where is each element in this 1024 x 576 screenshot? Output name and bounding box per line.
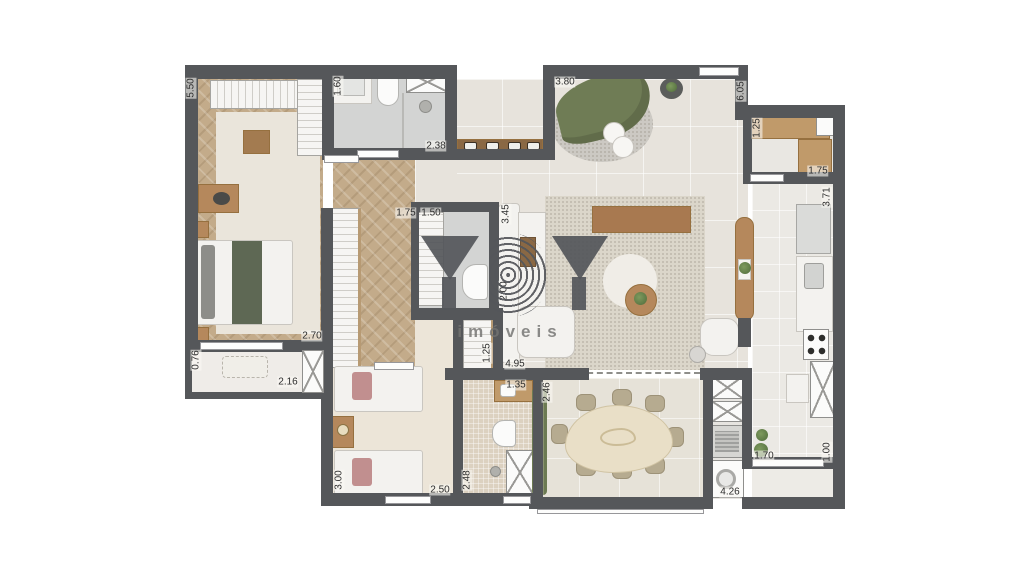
dimension-label: 2.70 — [301, 331, 322, 342]
dimension-label: 1.60 — [333, 75, 344, 96]
brand-letter-y-stem — [442, 277, 456, 310]
dimension-label: 1.25 — [482, 342, 493, 363]
dimension-label: 1.75 — [807, 166, 828, 177]
dimension-label: 4.26 — [719, 487, 740, 498]
dimension-label: 1.75 — [395, 208, 416, 219]
dimension-label: 2.16 — [277, 377, 298, 388]
dimension-label: 3.80 — [554, 77, 575, 88]
dimension-label: 2.46 — [542, 381, 553, 402]
dimension-label: 1.70 — [753, 451, 774, 462]
brand-letter-y2-stem — [572, 277, 586, 310]
dimension-label: 2.48 — [462, 469, 473, 490]
floor-plan: imóveis 5.501.602.383.806.051.251.753.71… — [0, 0, 1024, 576]
dimension-label: 3.71 — [822, 186, 833, 207]
dimension-label: 1.50 — [420, 208, 441, 219]
dimension-label: 2.38 — [425, 141, 446, 152]
dimension-label: 6.05 — [736, 80, 747, 101]
dimension-label: 0.76 — [191, 349, 202, 370]
dimension-label: 1.00 — [822, 441, 833, 462]
dimension-label: 2.50 — [429, 485, 450, 496]
watermark-subtitle: imóveis — [440, 322, 580, 342]
dimension-label: 3.45 — [501, 203, 512, 224]
dimension-label: 5.50 — [186, 77, 197, 98]
dimension-label: 4.95 — [504, 359, 525, 370]
dimension-label: 1.35 — [505, 380, 526, 391]
dimension-label: 1.25 — [752, 117, 763, 138]
dimension-label: 3.00 — [334, 469, 345, 490]
